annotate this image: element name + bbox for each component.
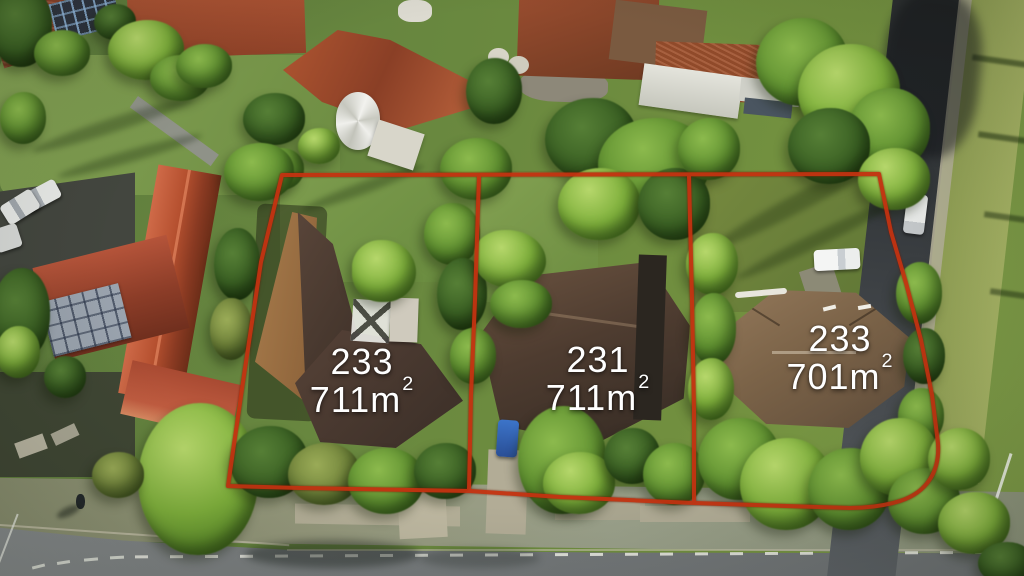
lot-label-2: 231 711m2	[546, 341, 650, 417]
lot-area: 701m2	[786, 358, 893, 396]
lot-area: 711m2	[310, 381, 414, 419]
lot-label-1: 233 711m2	[310, 343, 414, 419]
lot-number: 233	[786, 320, 893, 358]
aerial-photo: 233 711m2 231 711m2 233 701m2	[0, 0, 1024, 576]
lot-number: 231	[546, 341, 650, 379]
lot-label-3: 233 701m2	[786, 320, 893, 396]
lot-number: 233	[310, 343, 414, 381]
labels-layer: 233 711m2 231 711m2 233 701m2	[0, 0, 1024, 576]
lot-area: 711m2	[546, 379, 650, 417]
